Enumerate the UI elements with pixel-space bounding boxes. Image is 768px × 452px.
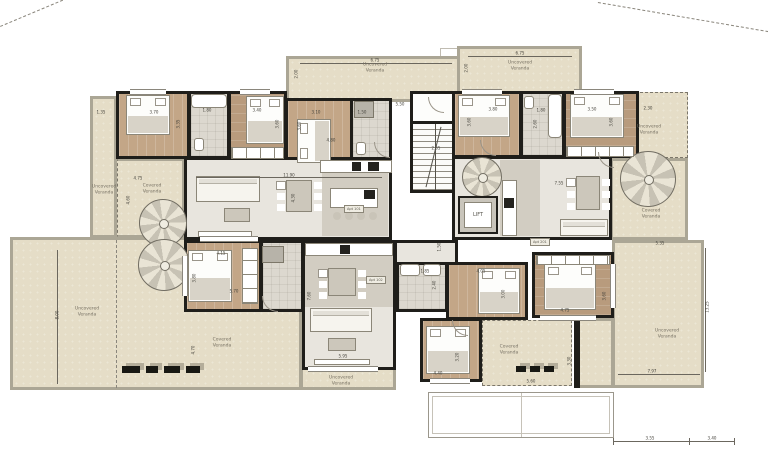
bed-blanket — [128, 116, 168, 133]
dimension-label: 4.70 — [191, 346, 196, 355]
sofa — [560, 219, 608, 236]
dimension-label: 2.00 — [294, 70, 299, 79]
apartment-tag: Apt 102 — [366, 276, 386, 284]
planter — [146, 366, 158, 373]
plot-boundary-line — [598, 2, 768, 32]
bathtub — [191, 94, 227, 108]
kitchen-counter — [502, 180, 517, 236]
dimension-label: 2.60 — [533, 120, 538, 129]
dimension-label: 5.70 — [230, 289, 239, 294]
dining-chairs — [277, 182, 285, 189]
sofa — [196, 176, 260, 202]
dimension-tick — [613, 438, 614, 445]
apartment-tag: Apt 101 — [344, 205, 364, 213]
coffee-table — [328, 338, 356, 351]
bar-stools — [333, 212, 341, 220]
dimension-label: 4.40 — [434, 371, 443, 376]
staircase-divider — [435, 124, 436, 190]
room-label: Uncovered Veranda — [69, 307, 105, 318]
dimension-label: 4.75 — [134, 176, 143, 181]
planter — [186, 366, 200, 373]
dimension-label: 3.60 — [602, 292, 607, 301]
room-label: Covered Veranda — [491, 345, 527, 356]
dimension-label: 7.97 — [648, 369, 657, 374]
window — [462, 89, 502, 95]
bed-blanket — [572, 117, 622, 136]
shower — [262, 246, 284, 263]
toilet — [194, 138, 204, 151]
dimension-label: 1.80 — [537, 108, 546, 113]
dining-table — [576, 176, 600, 210]
dimension-label: 3.35 — [176, 120, 181, 129]
dimension-line — [468, 56, 572, 57]
dimension-label: 3.60 — [275, 120, 280, 129]
dimension-label: 13.25 — [705, 301, 710, 312]
veranda-right-big — [612, 240, 704, 388]
veranda-left-strip — [90, 96, 117, 238]
spiral-staircase — [462, 157, 502, 197]
dimension-label: 1.85 — [421, 269, 430, 274]
dimension-label: 8.00 — [55, 311, 60, 320]
sliding-door — [308, 366, 378, 372]
window — [130, 89, 166, 95]
bathtub — [548, 94, 562, 138]
lift-label: LIFT — [464, 202, 492, 228]
wall-segment — [574, 316, 580, 388]
staircase-arrow — [426, 127, 442, 187]
dimension-label: 2.00 — [464, 64, 469, 73]
dimension-label: 4.05 — [477, 269, 486, 274]
planter — [516, 366, 526, 372]
bed-blanket — [546, 288, 594, 308]
room-label: Uncovered Veranda — [323, 376, 359, 387]
toilet — [524, 96, 534, 109]
dimension-label: 3.55 — [646, 436, 655, 441]
window — [240, 89, 270, 95]
dining-chairs — [567, 179, 575, 186]
toilet — [356, 142, 366, 155]
dimension-label: 1.50 — [437, 243, 442, 252]
bed — [458, 95, 510, 137]
sink — [364, 190, 375, 199]
dimension-label: 3.20 — [455, 353, 460, 362]
lower-floor-outline — [428, 392, 614, 438]
wardrobe — [231, 147, 284, 159]
dimension-label: 7.60 — [307, 292, 312, 301]
dimension-label: 5.35 — [656, 241, 665, 246]
window — [610, 264, 616, 308]
apartment-tag: Apt 201 — [530, 238, 550, 246]
bed — [478, 268, 520, 314]
dimension-label: 1.50 — [358, 110, 367, 115]
dimension-label: 4.15 — [217, 251, 226, 256]
dimension-label: 2.40 — [432, 281, 437, 290]
tv-unit — [314, 359, 370, 365]
dimension-tick — [689, 438, 690, 445]
dimension-label: 1.35 — [97, 110, 106, 115]
dimension-label: 5.60 — [527, 379, 536, 384]
window — [182, 256, 188, 296]
room-label: Uncovered Veranda — [631, 125, 667, 136]
dimension-label: 6.75 — [516, 51, 525, 56]
sliding-door — [200, 236, 258, 242]
veranda-right-big-ext — [578, 318, 614, 388]
dimension-label: 3.10 — [312, 110, 321, 115]
bed — [126, 95, 170, 135]
dimension-label: 7.55 — [555, 181, 564, 186]
room-label: Uncovered Veranda — [86, 185, 122, 196]
window — [430, 378, 470, 384]
room-label: Uncovered Veranda — [649, 329, 685, 340]
dimension-line — [613, 441, 735, 442]
dimension-label: 3.80 — [489, 107, 498, 112]
dimension-label: 4.75 — [561, 308, 570, 313]
planter — [164, 366, 180, 373]
cooktop — [340, 245, 350, 254]
planter — [544, 366, 554, 372]
dimension-label: 3.30 — [567, 357, 572, 366]
spiral-staircase — [620, 151, 676, 207]
dimension-label: 2.30 — [644, 106, 653, 111]
coffee-table — [224, 208, 250, 222]
dimension-label: 3.00 — [501, 290, 506, 299]
dimension-label: 3.60 — [297, 122, 302, 131]
room-label: Covered Veranda — [134, 184, 170, 195]
dining-table — [328, 268, 356, 296]
dimension-label: 2.65 — [432, 146, 441, 151]
dimension-label: 3.40 — [708, 436, 717, 441]
dimension-label: 4.80 — [327, 138, 336, 143]
dimension-label: 4.60 — [126, 196, 131, 205]
cooktop — [352, 162, 361, 171]
dimension-label: 3.70 — [150, 110, 159, 115]
dimension-label: 3.50 — [588, 107, 597, 112]
dimension-label: 3.40 — [253, 108, 262, 113]
lift: LIFT — [458, 196, 498, 234]
window — [574, 89, 614, 95]
lower-floor-divider — [521, 393, 522, 437]
room-label: Uncovered Veranda — [357, 63, 393, 74]
dimension-label: 3.60 — [609, 118, 614, 127]
dimension-label: 3.60 — [467, 118, 472, 127]
dimension-label: 5.95 — [339, 354, 348, 359]
closet — [536, 255, 610, 265]
closet — [242, 248, 258, 304]
veranda-dashed-divider — [116, 240, 117, 388]
room-label: Uncovered Veranda — [502, 61, 538, 72]
bed — [544, 264, 596, 310]
bed-blanket — [428, 351, 468, 372]
bathtub — [400, 264, 420, 276]
bed — [570, 94, 624, 138]
dimension-label: 4.30 — [291, 194, 296, 203]
bed-blanket — [480, 292, 518, 312]
window — [540, 315, 596, 321]
plot-boundary-line — [0, 0, 63, 27]
floor-plan: LIFT — [0, 0, 768, 452]
cooktop — [504, 198, 514, 208]
dining-chairs — [319, 270, 327, 277]
oven — [368, 162, 379, 171]
planter — [530, 366, 540, 372]
room-label: Covered Veranda — [204, 338, 240, 349]
planter — [122, 366, 140, 373]
dimension-label: 11.90 — [283, 173, 294, 178]
dimension-label: 3.80 — [192, 274, 197, 283]
dimension-line — [618, 374, 700, 375]
sofa — [310, 308, 372, 332]
dimension-label: 5.50 — [396, 102, 405, 107]
room-label: Covered Veranda — [633, 209, 669, 220]
dimension-tick — [734, 438, 735, 445]
dimension-label: 1.80 — [203, 108, 212, 113]
